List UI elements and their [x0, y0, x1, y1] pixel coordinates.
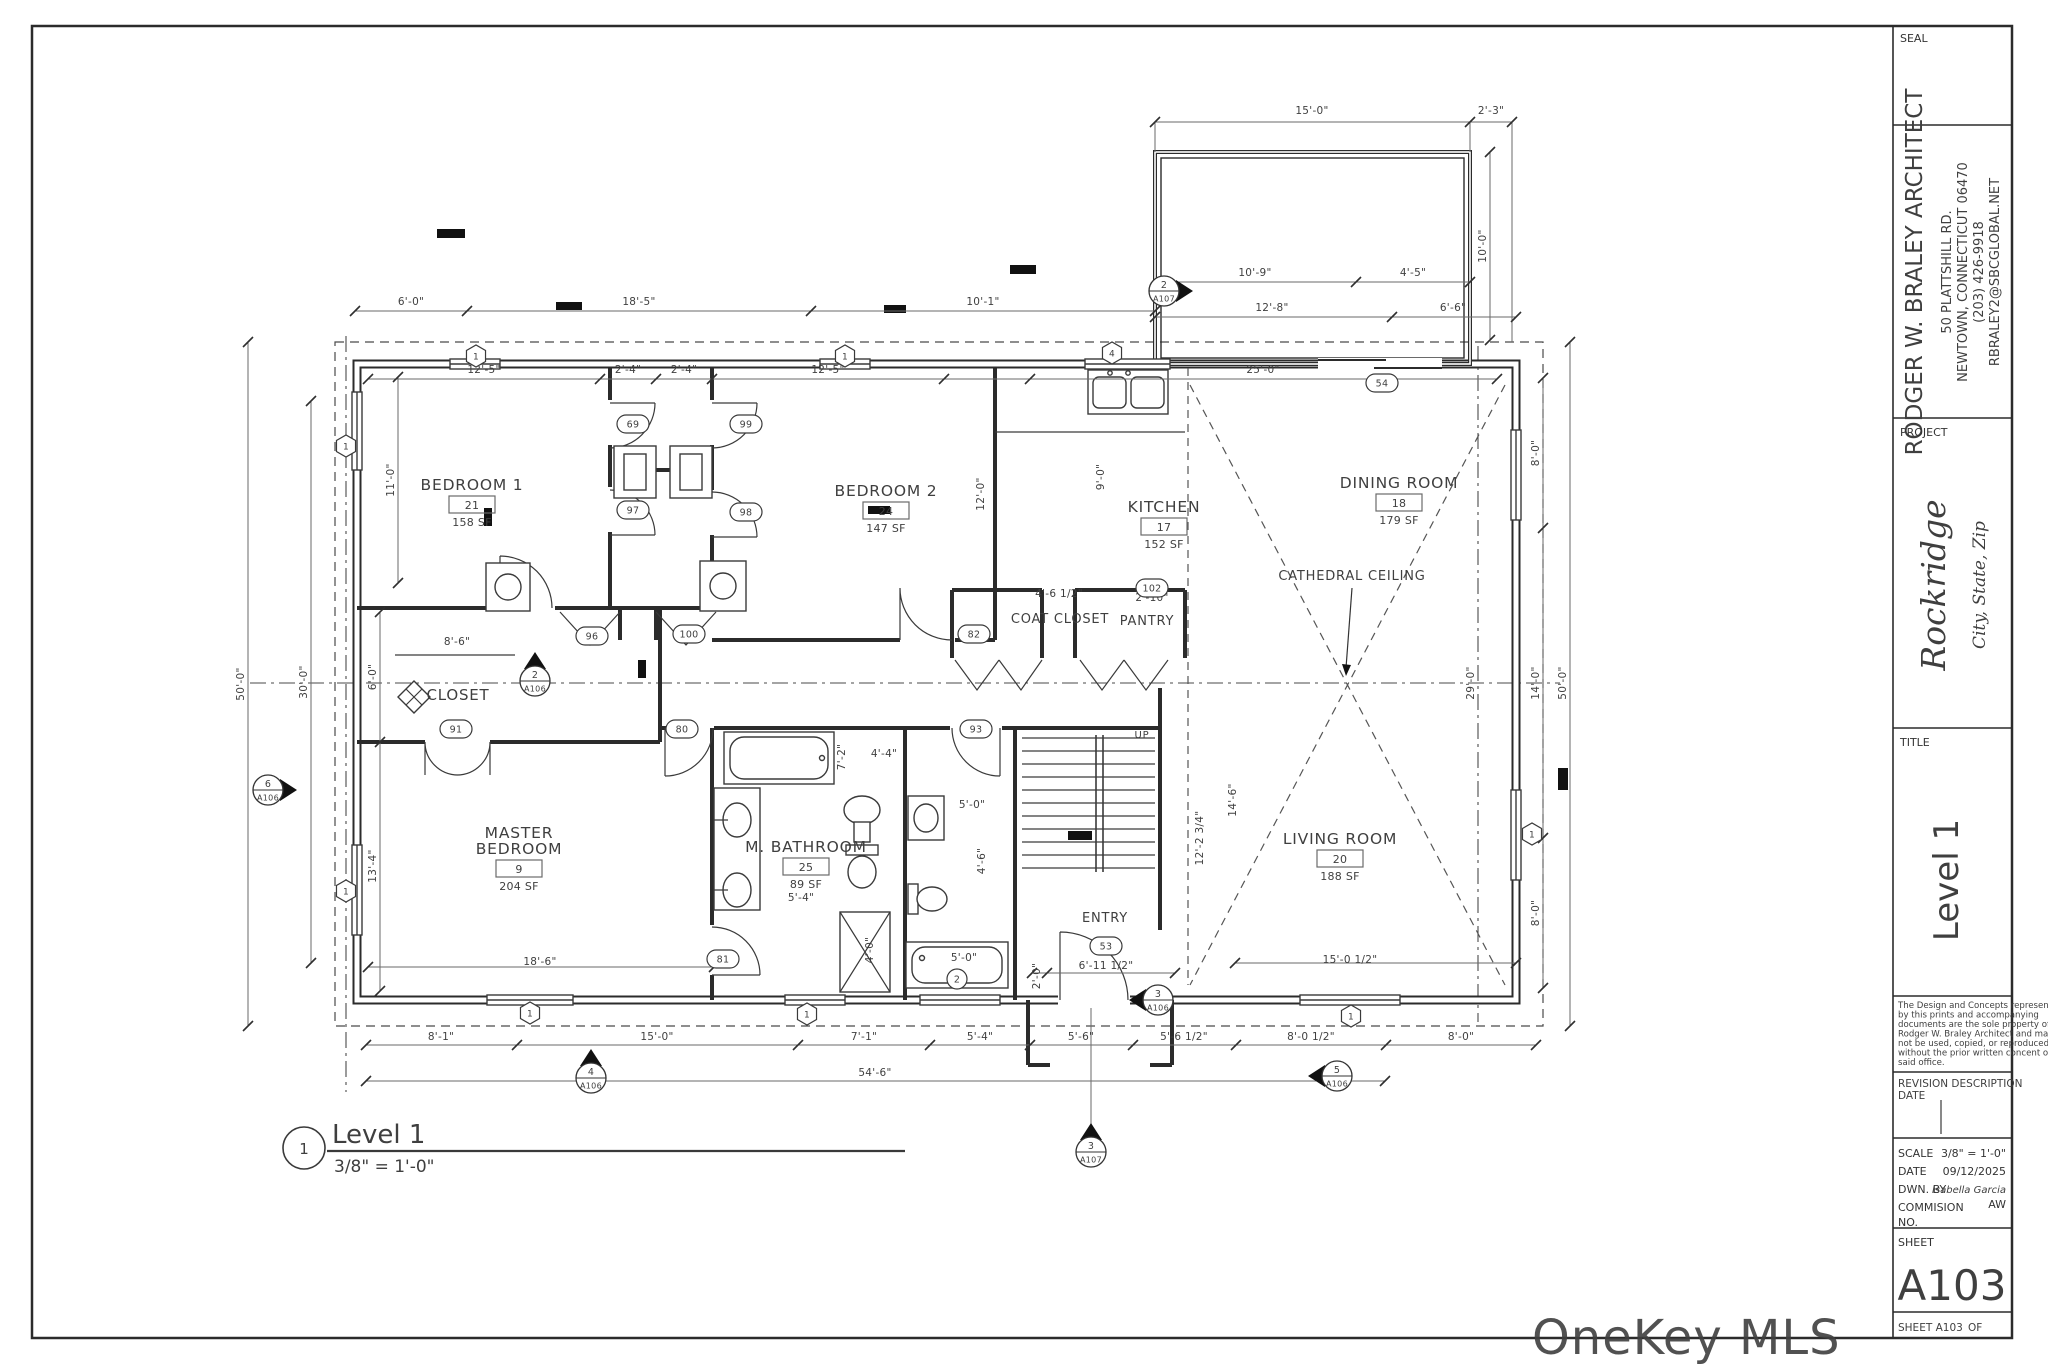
dim-label: 8'-0" [1530, 900, 1542, 926]
architect-name: RODGER W. BRALEY ARCHITECT [1902, 88, 1928, 456]
dim-label: 15'-0" [640, 1031, 673, 1043]
project-label: PROJECT [1900, 426, 1948, 439]
dim-label: 2'-4" [671, 364, 697, 376]
date-label: DATE [1898, 1165, 1927, 1178]
door-tag-99: 99 [730, 415, 762, 433]
dim-label: 15'-0" [1295, 105, 1328, 117]
dim-label: 10'-1" [966, 296, 999, 308]
window-tag-number: 1 [1529, 831, 1535, 841]
window-tag-number: 1 [842, 353, 848, 363]
copyright-note: The Design and Concepts represented by t… [1897, 1001, 2048, 1068]
door-tag-number: 93 [970, 725, 983, 736]
room-area: 89 SF [790, 878, 822, 891]
commission-value: AW [1988, 1198, 2006, 1211]
dim-label: 14'-0" [1530, 666, 1542, 699]
room-area: 188 SF [1320, 870, 1360, 883]
dim-label: 12'-8" [1255, 302, 1288, 314]
floor-plan-canvas: BEDROOM 121158 SFBEDROOM 224147 SFKITCHE… [0, 0, 2048, 1365]
footer-of: OF [1968, 1322, 1982, 1334]
door-tag-82: 82 [958, 625, 990, 643]
dim-label: 9'-0" [1095, 464, 1107, 490]
date-value: 09/12/2025 [1943, 1165, 2006, 1178]
dim-label: 2'-0" [1031, 963, 1043, 989]
room-name: KITCHEN [1128, 498, 1201, 516]
window-tag-number: 1 [343, 888, 349, 898]
label-up: UP [1135, 730, 1150, 741]
sheet-label: SHEET [1898, 1236, 1934, 1249]
room-tag: 17 [1157, 521, 1172, 534]
label-closet: CLOSET [426, 686, 489, 704]
section-number: 2 [532, 670, 538, 681]
dim-label: 13'-4" [367, 849, 379, 882]
hall-bath-vanity [908, 796, 944, 840]
architect-email: RBRALEY2@SBCGLOBAL.NET [1988, 178, 2003, 366]
window-tag: 1 [797, 1003, 816, 1025]
room-area: 179 SF [1379, 514, 1419, 527]
section-number: 5 [1334, 1065, 1340, 1076]
room-tag: 24 [879, 505, 894, 518]
door-tag-number: 102 [1142, 584, 1161, 595]
dim-label: 8'-1" [428, 1031, 454, 1043]
door-tag-number: 81 [717, 955, 730, 966]
dim-label: 4'-0" [864, 937, 876, 963]
door-tag-number: 69 [627, 420, 640, 431]
window-tag-number: 1 [1348, 1013, 1354, 1023]
label-entry: ENTRY [1082, 911, 1128, 926]
dim-label: 7'-1" [851, 1031, 877, 1043]
window-tag: 1 [835, 345, 854, 367]
dim-label: 12'-0" [975, 477, 987, 510]
dim-label: 6'-0" [398, 296, 424, 308]
dim-label: 6'-11 1/2" [1079, 960, 1134, 972]
room-area: 158 SF [452, 516, 492, 529]
dim-label: 6'-0" [367, 664, 379, 690]
window-tag: 4 [1102, 342, 1121, 364]
room-name: BEDROOM 1 [421, 476, 524, 494]
door-tag-80: 80 [666, 720, 698, 738]
view-number: 1 [299, 1140, 309, 1158]
room-tag: 9 [515, 863, 522, 876]
window-tag-number: 1 [343, 443, 349, 453]
dim-label: 4'-4" [871, 748, 897, 760]
scale-label: SCALE [1898, 1147, 1933, 1160]
door-tag-number: 100 [679, 630, 698, 641]
door-tag-number: 97 [627, 506, 640, 517]
dim-label: 18'-6" [523, 956, 556, 968]
room-tag: 25 [799, 861, 814, 874]
door-tag-96: 96 [576, 627, 608, 645]
door-tag-69: 69 [617, 415, 649, 433]
room-area: 152 SF [1144, 538, 1184, 551]
seal-label: SEAL [1900, 32, 1928, 45]
project-name: Rockridge [1914, 499, 1953, 671]
svg-text:said office.: said office. [1898, 1058, 1945, 1068]
window-tag-number: 4 [1109, 350, 1115, 360]
dim-label: 12'-5" [467, 364, 500, 376]
section-sheet: A106 [580, 1082, 602, 1091]
label-pantry: PANTRY [1120, 614, 1175, 629]
scale-value: 3/8" = 1'-0" [1941, 1147, 2006, 1160]
dim-label: 5'-6 1/2" [1160, 1031, 1208, 1043]
window-tag: 1 [1341, 1005, 1360, 1027]
dim-label: 30'-0" [298, 665, 310, 698]
door-tag-number: 91 [450, 725, 463, 736]
dim-label: 5'-0" [951, 952, 977, 964]
dim-label: 2'-4" [615, 364, 641, 376]
door-tag-number: 80 [676, 725, 689, 736]
section-sheet: A106 [524, 685, 546, 694]
room-name: M. BATHROOM [745, 838, 867, 856]
door-tag-number: 98 [740, 508, 753, 519]
dim-label: 50'-0" [235, 667, 247, 700]
door-tag-91: 91 [440, 720, 472, 738]
room-tag: 21 [465, 499, 480, 512]
footer-sheet: SHEET A103 [1898, 1322, 1963, 1334]
dim-label: 18'-5" [622, 296, 655, 308]
label-cathedral-ceiling: CATHEDRAL CEILING [1278, 569, 1425, 584]
project-location: City, State, Zip [1970, 521, 1990, 649]
door-tag-number: 82 [968, 630, 981, 641]
room-area: 147 SF [866, 522, 906, 535]
door-tag-2: 2 [947, 969, 967, 989]
dim-label: 2'-3" [1478, 105, 1504, 117]
section-sheet: A106 [1326, 1080, 1348, 1089]
section-sheet: A107 [1153, 295, 1175, 304]
room-name: BEDROOM 2 [835, 482, 938, 500]
sheet-title: Level 1 [1927, 819, 1967, 941]
dim-label: 4'-5" [1400, 267, 1426, 279]
door-tag-97: 97 [617, 501, 649, 519]
door-tag-number: 53 [1100, 942, 1113, 953]
watermark: OneKey MLS [1532, 1310, 1841, 1365]
dim-label: 12'-2 3/4" [1194, 811, 1206, 866]
commission-no-label: NO. [1898, 1216, 1918, 1229]
room-name: BEDROOM [476, 840, 563, 858]
dim-label: 6'-6" [1440, 302, 1466, 314]
label-coat-closet: COAT CLOSET [1011, 612, 1109, 627]
section-number: 4 [588, 1067, 594, 1078]
dim-label: 29'-0" [1465, 666, 1477, 699]
room-tag: 20 [1333, 853, 1348, 866]
section-sheet: A106 [257, 794, 279, 803]
svg-text:The Design and Concepts repres: The Design and Concepts represented [1897, 1001, 2048, 1011]
section-number: 2 [1161, 280, 1167, 291]
door-tag-53: 53 [1090, 937, 1122, 955]
sheet-number: A103 [1898, 1261, 2007, 1310]
dim-label: 8'-0 1/2" [1287, 1031, 1335, 1043]
revision-header: REVISION DESCRIPTION [1898, 1078, 2023, 1090]
dim-label: 4'-6 1/2" [1035, 588, 1083, 600]
dim-label: 8'-6" [444, 636, 470, 648]
door-tag-number: 2 [954, 975, 960, 986]
dim-label: 14'-6" [1227, 783, 1239, 816]
dim-label: 50'-0" [1557, 666, 1569, 699]
door-tag-98: 98 [730, 503, 762, 521]
dim-label: 10'-0" [1477, 229, 1489, 262]
sheet-border [32, 26, 2012, 1338]
svg-text:not be used, copied, or reprod: not be used, copied, or reproduced [1898, 1039, 2048, 1049]
dim-label: 15'-0 1/2" [1323, 954, 1378, 966]
architect-address1: 50 PLATTSHILL RD. [1940, 210, 1955, 333]
dim-label: 54'-6" [858, 1067, 891, 1079]
room-area: 204 SF [499, 880, 539, 893]
door-tag-number: 96 [586, 632, 599, 643]
door-tag-number: 99 [740, 420, 753, 431]
architect-address2: NEWTOWN, CONNECTICUT 06470 [1956, 162, 1971, 382]
architect-phone: (203) 426-9918 [1972, 221, 1987, 323]
svg-text:documents are the sole propert: documents are the sole property of [1898, 1020, 2048, 1030]
section-sheet: A106 [1147, 1004, 1169, 1013]
door-tag-102: 102 [1136, 579, 1168, 597]
room-tag: 18 [1392, 497, 1407, 510]
door-tag-100: 100 [673, 625, 705, 643]
window-tag: 1 [336, 435, 355, 457]
room-name: LIVING ROOM [1283, 830, 1397, 848]
drawn-by-value: Isabella Garcia [1932, 1185, 2006, 1196]
dim-label: 11'-0" [385, 463, 397, 496]
commission-label: COMMISION [1898, 1201, 1964, 1214]
drawing-sheet: BEDROOM 121158 SFBEDROOM 224147 SFKITCHE… [0, 0, 2048, 1365]
view-scale: 3/8" = 1'-0" [334, 1157, 435, 1177]
svg-text:Rodger W. Braley Architect and: Rodger W. Braley Architect and may [1898, 1030, 2048, 1040]
window-tag-number: 1 [473, 353, 479, 363]
room-name: DINING ROOM [1340, 474, 1459, 492]
door-tag-81: 81 [707, 950, 739, 968]
dim-label: 8'-0" [1448, 1031, 1474, 1043]
door-tag-number: 54 [1376, 379, 1389, 390]
door-tag-93: 93 [960, 720, 992, 738]
section-number: 6 [265, 779, 271, 790]
section-number: 3 [1088, 1141, 1094, 1152]
master-bath-tub [724, 732, 834, 784]
door-tag-54: 54 [1366, 374, 1398, 392]
dim-label: 12'-5" [811, 364, 844, 376]
dim-label: 5'-4" [967, 1031, 993, 1043]
kitchen-sink [1088, 370, 1168, 414]
section-number: 3 [1155, 989, 1161, 1000]
window-tag-number: 1 [527, 1010, 533, 1020]
dim-label: 5'-0" [959, 799, 985, 811]
dim-label: 25'-0" [1246, 364, 1279, 376]
svg-text:by this prints and accompanyin: by this prints and accompanying [1898, 1011, 2039, 1021]
dim-label: 8'-0" [1530, 440, 1542, 466]
dim-label: 4'-6" [976, 848, 988, 874]
dim-label: 10'-9" [1238, 267, 1271, 279]
title-label: TITLE [1899, 736, 1930, 749]
dim-label: 5'-4" [788, 892, 814, 904]
window-tag: 1 [466, 345, 485, 367]
section-sheet: A107 [1080, 1156, 1102, 1165]
window-tag-number: 1 [804, 1011, 810, 1021]
svg-text:without the prior written conc: without the prior written concent of [1898, 1049, 2048, 1059]
dim-label: 5'-6" [1068, 1031, 1094, 1043]
window-tag: 1 [1522, 823, 1541, 845]
view-name: Level 1 [332, 1120, 425, 1150]
window-tag: 1 [520, 1002, 539, 1024]
dim-label: 7'-2" [836, 744, 848, 770]
window-tag: 1 [336, 880, 355, 902]
date-header: DATE [1898, 1090, 1925, 1102]
